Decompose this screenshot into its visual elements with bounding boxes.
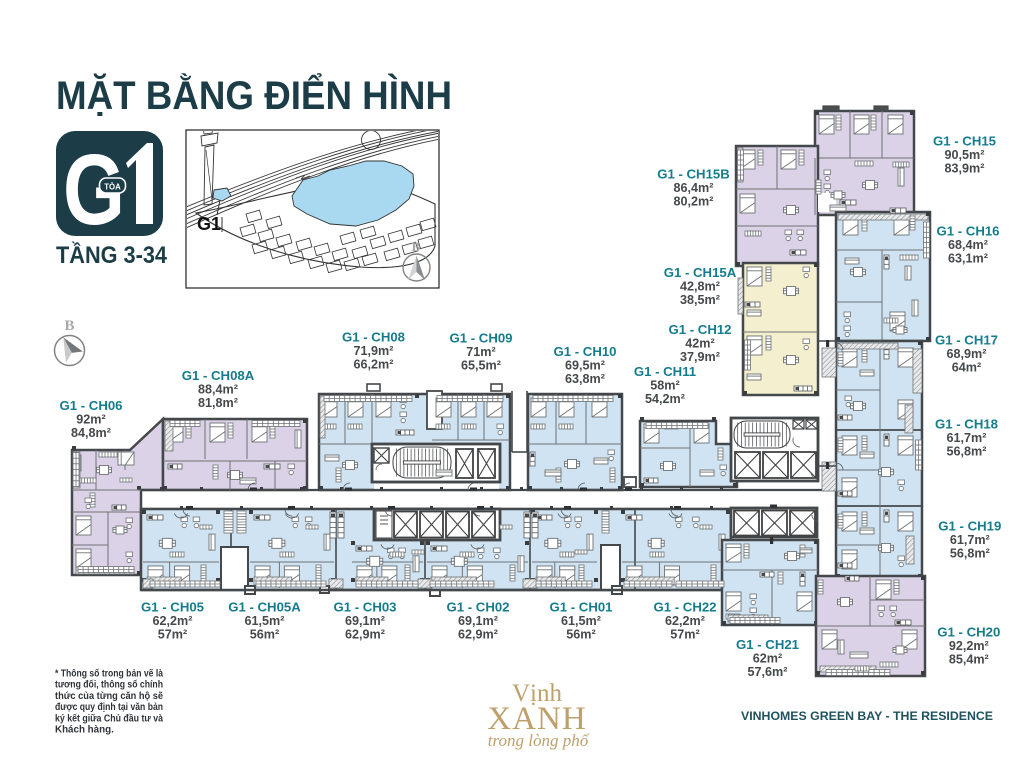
svg-text:G1 - CH12: G1 - CH12 [668, 322, 731, 337]
svg-text:42m²: 42m² [685, 337, 714, 351]
svg-text:69,1m²: 69,1m² [345, 614, 385, 628]
svg-text:B: B [412, 239, 421, 254]
svg-text:68,4m²: 68,4m² [948, 238, 988, 252]
svg-text:86,4m²: 86,4m² [674, 181, 714, 195]
svg-text:92,2m²: 92,2m² [949, 639, 989, 653]
svg-text:81,8m²: 81,8m² [198, 396, 238, 410]
svg-text:56,8m²: 56,8m² [947, 445, 987, 459]
svg-text:85,4m²: 85,4m² [949, 653, 989, 667]
svg-text:G1 - CH15A: G1 - CH15A [664, 265, 737, 280]
svg-text:TẦNG 3-34: TẦNG 3-34 [56, 241, 168, 269]
svg-text:42,8m²: 42,8m² [680, 280, 720, 294]
svg-text:G1 - CH06: G1 - CH06 [59, 398, 122, 413]
svg-text:thức của từng căn hộ sẽ: thức của từng căn hộ sẽ [55, 691, 164, 702]
svg-text:* Thông số trong bản vẽ là: * Thông số trong bản vẽ là [55, 669, 163, 680]
svg-text:56m²: 56m² [250, 628, 279, 642]
svg-text:56m²: 56m² [566, 628, 595, 642]
svg-text:38,5m²: 38,5m² [680, 293, 720, 307]
svg-text:71m²: 71m² [466, 345, 495, 359]
svg-text:71,9m²: 71,9m² [354, 344, 394, 358]
svg-text:62,9m²: 62,9m² [345, 628, 385, 642]
svg-text:VINHOMES GREEN BAY - THE RESID: VINHOMES GREEN BAY - THE RESIDENCE [741, 711, 993, 723]
svg-text:61,7m²: 61,7m² [950, 533, 990, 547]
svg-text:trong lòng phố: trong lòng phố [488, 731, 590, 750]
svg-text:G1 - CH15: G1 - CH15 [933, 134, 996, 149]
svg-text:G1 - CH09: G1 - CH09 [449, 331, 512, 346]
svg-text:62,2m²: 62,2m² [153, 614, 193, 628]
svg-text:B: B [64, 318, 74, 334]
svg-text:84,8m²: 84,8m² [71, 426, 111, 440]
svg-text:69,5m²: 69,5m² [565, 359, 605, 373]
svg-text:83,9m²: 83,9m² [945, 162, 985, 176]
svg-text:TÒA: TÒA [104, 183, 121, 192]
svg-text:62,2m²: 62,2m² [665, 614, 705, 628]
svg-text:63,1m²: 63,1m² [948, 252, 988, 266]
svg-text:G1 - CH05: G1 - CH05 [141, 600, 204, 615]
svg-text:G1 - CH10: G1 - CH10 [553, 344, 616, 359]
svg-text:G1 - CH01: G1 - CH01 [549, 600, 612, 615]
svg-text:G1 - CH08A: G1 - CH08A [182, 368, 255, 383]
svg-text:56,8m²: 56,8m² [950, 547, 990, 561]
svg-text:G1 - CH17: G1 - CH17 [935, 333, 998, 348]
svg-text:64m²: 64m² [952, 361, 981, 375]
svg-text:68,9m²: 68,9m² [947, 347, 987, 361]
svg-text:37,9m²: 37,9m² [680, 350, 720, 364]
svg-text:90,5m²: 90,5m² [945, 148, 985, 162]
svg-text:58m²: 58m² [650, 379, 679, 393]
svg-text:tương đối, thông số chính: tương đối, thông số chính [55, 680, 163, 691]
svg-text:54,2m²: 54,2m² [645, 392, 685, 406]
svg-text:G1 - CH22: G1 - CH22 [653, 600, 716, 615]
svg-text:62m²: 62m² [753, 652, 782, 666]
svg-text:G1 - CH15B: G1 - CH15B [657, 167, 730, 182]
svg-text:G1 - CH08: G1 - CH08 [342, 330, 405, 345]
svg-text:G1 - CH19: G1 - CH19 [938, 519, 1001, 534]
svg-text:ký kết giữa Chủ đầu tư và: ký kết giữa Chủ đầu tư và [55, 713, 163, 724]
svg-text:G1 - CH03: G1 - CH03 [333, 600, 396, 615]
svg-text:Khách hàng.: Khách hàng. [55, 725, 114, 736]
svg-text:61,7m²: 61,7m² [947, 431, 987, 445]
svg-text:92m²: 92m² [76, 413, 105, 427]
svg-text:69,1m²: 69,1m² [458, 614, 498, 628]
svg-text:57,6m²: 57,6m² [748, 665, 788, 679]
svg-text:G1 - CH18: G1 - CH18 [935, 417, 998, 432]
svg-text:G1 - CH02: G1 - CH02 [446, 600, 509, 615]
svg-text:62,9m²: 62,9m² [458, 628, 498, 642]
svg-text:57m²: 57m² [670, 628, 699, 642]
svg-text:88,4m²: 88,4m² [198, 383, 238, 397]
svg-text:57m²: 57m² [158, 628, 187, 642]
svg-text:66,2m²: 66,2m² [354, 358, 394, 372]
svg-text:MẶT BẰNG ĐIỂN HÌNH: MẶT BẰNG ĐIỂN HÌNH [56, 71, 452, 118]
svg-text:G1 - CH20: G1 - CH20 [937, 625, 1000, 640]
svg-text:G1 - CH16: G1 - CH16 [936, 224, 999, 239]
svg-text:65,5m²: 65,5m² [461, 359, 501, 373]
svg-text:G1 - CH11: G1 - CH11 [634, 364, 696, 379]
svg-text:được quy định tại văn bản: được quy định tại văn bản [55, 702, 163, 713]
svg-text:G1 - CH05A: G1 - CH05A [228, 600, 301, 615]
svg-text:61,5m²: 61,5m² [561, 614, 601, 628]
svg-text:63,8m²: 63,8m² [565, 372, 605, 386]
svg-text:61,5m²: 61,5m² [245, 614, 285, 628]
svg-text:80,2m²: 80,2m² [674, 195, 714, 209]
svg-text:G1: G1 [197, 214, 221, 234]
svg-text:G1 - CH21: G1 - CH21 [736, 637, 799, 652]
